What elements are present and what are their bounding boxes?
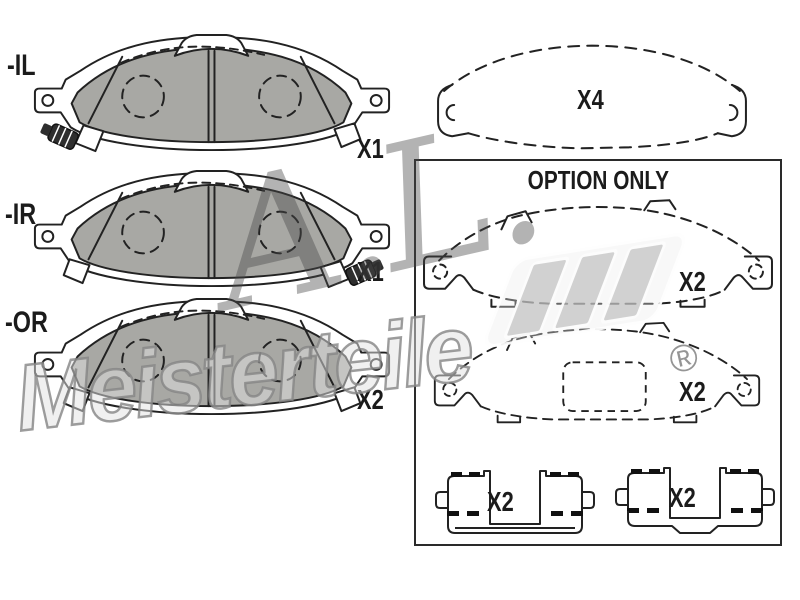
pad-il-label: -IL bbox=[7, 49, 36, 83]
hardware-clip-left-drawing bbox=[433, 462, 597, 540]
pad-il-drawing bbox=[26, 31, 398, 162]
pad-ir-drawing bbox=[26, 167, 398, 298]
pad-or-drawing bbox=[26, 295, 398, 426]
option-shim-1-drawing bbox=[421, 198, 775, 311]
pad-ir-label: -IR bbox=[5, 198, 36, 232]
pad-or-label: -OR bbox=[5, 306, 48, 340]
hardware-clip-left-qty: X2 bbox=[487, 486, 514, 518]
hardware-clip-right-qty: X2 bbox=[669, 482, 696, 514]
pad-or-qty: X2 bbox=[357, 384, 384, 416]
brake-pad-kit-diagram: -IL X1 -IR X1 -OR X2 X4 OPTION ONLY bbox=[0, 0, 800, 600]
option-box: OPTION ONLY bbox=[414, 159, 782, 546]
pad-ir-qty: X1 bbox=[357, 256, 384, 288]
option-shim-1-qty: X2 bbox=[679, 266, 706, 298]
option-shim-2-qty: X2 bbox=[679, 376, 706, 408]
option-box-title: OPTION ONLY bbox=[527, 165, 668, 196]
pad-il-qty: X1 bbox=[357, 133, 384, 165]
option-shim-2-drawing bbox=[421, 321, 773, 426]
shim-x4-qty: X4 bbox=[577, 84, 604, 116]
